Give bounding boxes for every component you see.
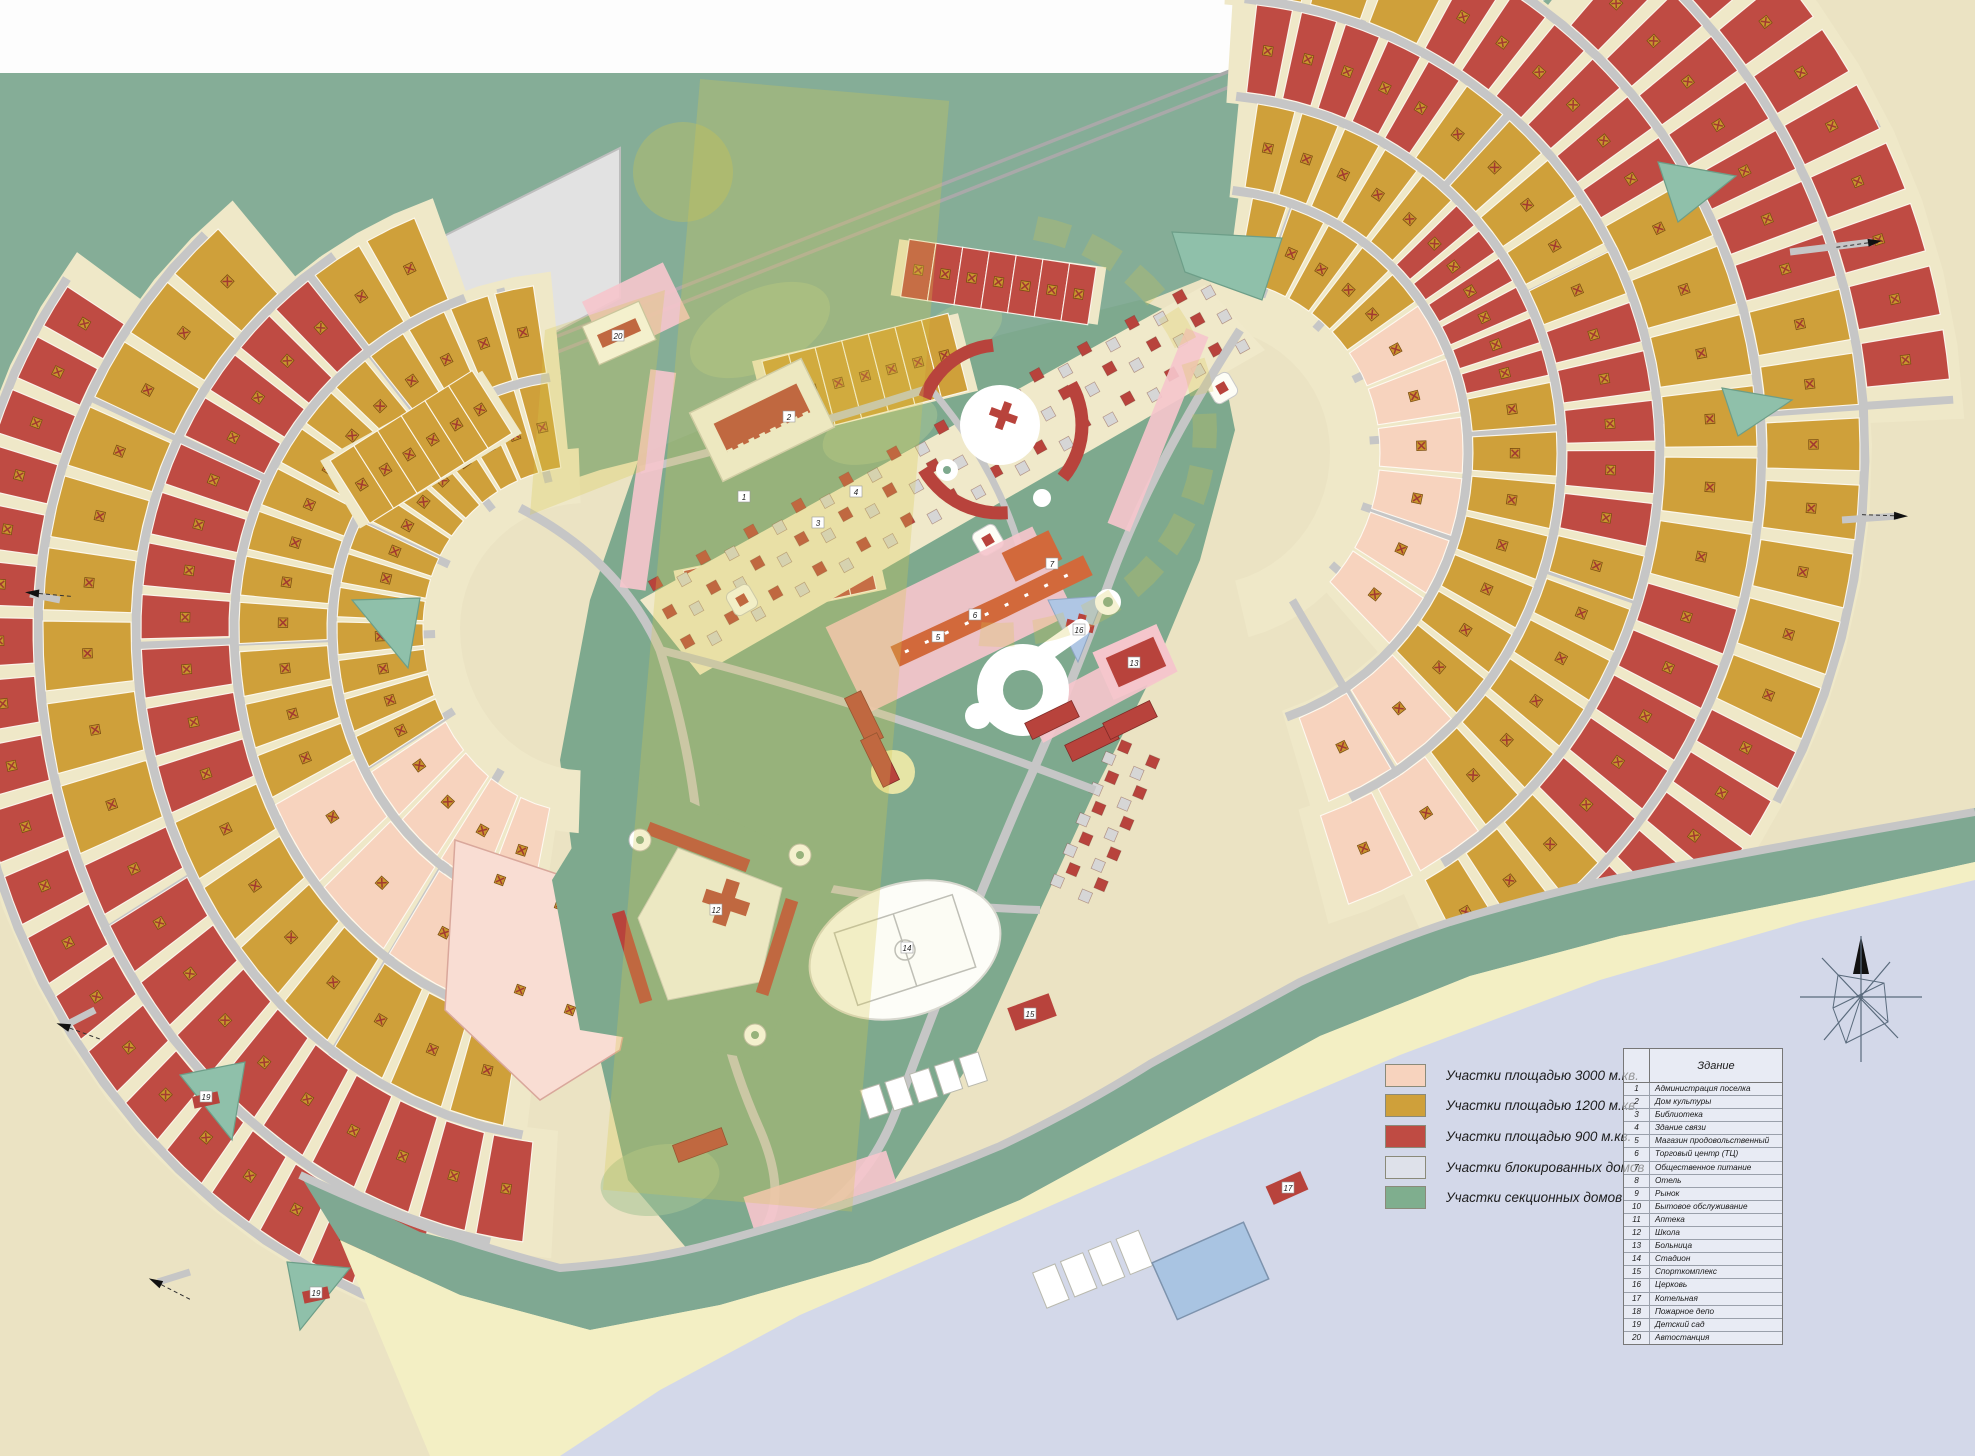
house-icon xyxy=(0,579,6,589)
legend-label: Участки площадью 3000 м.кв. xyxy=(1446,1068,1639,1083)
house-icon xyxy=(180,612,190,622)
house-icon xyxy=(1047,285,1058,296)
building-name: Дом культуры xyxy=(1650,1096,1782,1108)
legend-swatch xyxy=(1385,1064,1426,1087)
building-table-header: Здание xyxy=(1624,1049,1782,1083)
building-label: 17 xyxy=(1284,1184,1293,1193)
building-number: 16 xyxy=(1624,1279,1650,1291)
building-table-row: 6Торговый центр (ТЦ) xyxy=(1624,1148,1782,1161)
building-table-rows: 1Администрация поселка2Дом культуры3Библ… xyxy=(1624,1083,1782,1344)
building-label: 1 xyxy=(742,493,746,502)
building-table-row: 18Пожарное депо xyxy=(1624,1306,1782,1319)
road xyxy=(1842,516,1898,520)
building-table-row: 17Котельная xyxy=(1624,1293,1782,1306)
house-icon xyxy=(1073,289,1084,300)
building-table-row: 5Магазин продовольственный xyxy=(1624,1135,1782,1148)
house-icon xyxy=(84,578,94,588)
legend-swatch xyxy=(1385,1186,1426,1209)
house-icon xyxy=(1606,465,1616,475)
house-icon xyxy=(94,510,105,521)
house-icon xyxy=(1601,512,1612,523)
legend-swatch xyxy=(1385,1156,1426,1179)
building-number: 8 xyxy=(1624,1175,1650,1187)
legend-label: Участки блокированных домов xyxy=(1446,1160,1644,1175)
building-table-row: 8Отель xyxy=(1624,1175,1782,1188)
house-icon xyxy=(1783,629,1795,641)
building-name: Детский сад xyxy=(1650,1319,1782,1331)
building-table-row: 16Церковь xyxy=(1624,1279,1782,1292)
house-icon xyxy=(280,663,291,674)
building-name: Общественное питание xyxy=(1650,1162,1782,1174)
house-icon xyxy=(1506,494,1517,505)
building-name: Аптека xyxy=(1650,1214,1782,1226)
house-icon xyxy=(1411,493,1422,504)
house-icon xyxy=(188,716,199,727)
house-icon xyxy=(0,636,4,646)
building-table: Здание 1Администрация поселка2Дом культу… xyxy=(1623,1048,1783,1345)
building-name: Отель xyxy=(1650,1175,1782,1187)
building-number: 10 xyxy=(1624,1201,1650,1213)
house-icon xyxy=(482,1064,494,1076)
building-label: 4 xyxy=(854,488,859,497)
building-table-row: 15Спорткомплекс xyxy=(1624,1266,1782,1279)
building-label: 5 xyxy=(936,633,941,642)
house-icon xyxy=(1408,390,1420,402)
building-label: 20 xyxy=(613,332,623,341)
house-icon xyxy=(380,573,392,585)
house-icon xyxy=(1696,348,1707,359)
house-icon xyxy=(1705,414,1715,424)
building-label: 13 xyxy=(1130,659,1139,668)
building-table-row: 11Аптека xyxy=(1624,1214,1782,1227)
house-icon xyxy=(378,663,389,674)
legend-swatch xyxy=(1385,1094,1426,1117)
building-table-row: 19Детский сад xyxy=(1624,1319,1782,1332)
house-icon xyxy=(278,618,288,628)
building-table-row: 14Стадион xyxy=(1624,1253,1782,1266)
building-table-row: 3Библиотека xyxy=(1624,1109,1782,1122)
building-name: Стадион xyxy=(1650,1253,1782,1265)
building-number: 3 xyxy=(1624,1109,1650,1121)
house-icon xyxy=(184,565,195,576)
house-icon xyxy=(517,327,528,338)
building-label: 19 xyxy=(312,1289,321,1298)
building-number: 19 xyxy=(1624,1319,1650,1331)
house-icon xyxy=(1591,560,1603,572)
house-icon xyxy=(448,1170,460,1182)
house-icon xyxy=(281,577,292,588)
legend-label: Участки секционных домов xyxy=(1446,1190,1622,1205)
building-table-row: 4Здание связи xyxy=(1624,1122,1782,1135)
building-table-row: 9Рынок xyxy=(1624,1188,1782,1201)
house-icon xyxy=(501,1183,512,1194)
building-name: Администрация поселка xyxy=(1650,1083,1782,1095)
building-table-title: Здание xyxy=(1650,1060,1782,1072)
building-name: Рынок xyxy=(1650,1188,1782,1200)
house-icon xyxy=(289,537,301,549)
legend-label: Участки площадью 900 м.кв. xyxy=(1446,1129,1631,1144)
building-number: 11 xyxy=(1624,1214,1650,1226)
house-icon xyxy=(1599,373,1610,384)
building-label: 16 xyxy=(1075,626,1084,635)
building-number: 4 xyxy=(1624,1122,1650,1134)
house-icon xyxy=(181,664,191,674)
legend-item: Участки секционных домов xyxy=(1385,1187,1622,1209)
house-icon xyxy=(1794,318,1805,329)
building-label: 15 xyxy=(1026,1010,1035,1019)
house-icon xyxy=(1705,482,1715,492)
building-name: Бытовое обслуживание xyxy=(1650,1201,1782,1213)
legend-item: Участки блокированных домов xyxy=(1385,1156,1644,1178)
house-icon xyxy=(1804,379,1814,389)
building-table-row: 2Дом культуры xyxy=(1624,1096,1782,1109)
building-name: Школа xyxy=(1650,1227,1782,1239)
house-icon xyxy=(2,524,13,535)
building-name: Библиотека xyxy=(1650,1109,1782,1121)
building-label: 12 xyxy=(712,906,721,915)
building-number: 12 xyxy=(1624,1227,1650,1239)
building-label: 14 xyxy=(903,944,912,953)
building-number: 7 xyxy=(1624,1162,1650,1174)
building-number: 5 xyxy=(1624,1135,1650,1147)
house-icon xyxy=(1510,448,1520,458)
building-table-row: 12Школа xyxy=(1624,1227,1782,1240)
building-number: 1 xyxy=(1624,1083,1650,1095)
house-icon xyxy=(0,698,8,709)
building-number: 15 xyxy=(1624,1266,1650,1278)
building-table-row: 1Администрация поселка xyxy=(1624,1083,1782,1096)
house-icon xyxy=(6,760,17,771)
building-table-row: 7Общественное питание xyxy=(1624,1162,1782,1175)
house-icon xyxy=(1499,367,1511,379)
house-icon xyxy=(13,469,25,481)
house-icon xyxy=(1262,143,1273,154)
building-label: 19 xyxy=(202,1093,211,1102)
legend-item: Участки площадью 1200 м.кв. xyxy=(1385,1095,1639,1117)
house-icon xyxy=(1302,54,1314,66)
house-icon xyxy=(1417,441,1427,451)
house-icon xyxy=(1889,293,1900,304)
house-icon xyxy=(83,648,93,658)
building-name: Автостанция xyxy=(1650,1332,1782,1344)
house-icon xyxy=(940,269,951,280)
house-icon xyxy=(1020,281,1031,292)
building-number: 20 xyxy=(1624,1332,1650,1344)
house-icon xyxy=(1797,566,1808,577)
building-name: Здание связи xyxy=(1650,1122,1782,1134)
building-name: Котельная xyxy=(1650,1293,1782,1305)
legend-item: Участки площадью 900 м.кв. xyxy=(1385,1125,1631,1147)
building-number: 9 xyxy=(1624,1188,1650,1200)
house-icon xyxy=(966,273,977,284)
building-table-row: 13Больница xyxy=(1624,1240,1782,1253)
legend-swatch xyxy=(1385,1125,1426,1148)
building-number: 13 xyxy=(1624,1240,1650,1252)
house-icon xyxy=(1696,551,1707,562)
house-icon xyxy=(1806,503,1816,513)
building-number: 18 xyxy=(1624,1306,1650,1318)
house-icon xyxy=(90,724,101,735)
building-label: 3 xyxy=(816,519,821,528)
house-icon xyxy=(1809,440,1819,450)
building-name: Пожарное депо xyxy=(1650,1306,1782,1318)
building-number: 6 xyxy=(1624,1148,1650,1160)
building-number: 17 xyxy=(1624,1293,1650,1305)
building-number: 14 xyxy=(1624,1253,1650,1265)
house-icon xyxy=(287,708,299,720)
building-label: 7 xyxy=(1050,560,1055,569)
masterplan-page: 2021435671613121415171919 Участки площад… xyxy=(0,0,1975,1456)
building-label: 2 xyxy=(786,413,792,422)
house-icon xyxy=(1507,404,1518,415)
building-table-row: 10Бытовое обслуживание xyxy=(1624,1201,1782,1214)
house-icon xyxy=(993,277,1004,288)
building-name: Больница xyxy=(1650,1240,1782,1252)
plot-cell xyxy=(0,617,34,667)
building-name: Спорткомплекс xyxy=(1650,1266,1782,1278)
building-table-row: 20Автостанция xyxy=(1624,1332,1782,1344)
building-table-num-col xyxy=(1624,1049,1650,1082)
building-name: Церковь xyxy=(1650,1279,1782,1291)
house-icon xyxy=(1900,354,1911,365)
legend-item: Участки площадью 3000 м.кв. xyxy=(1385,1064,1639,1086)
building-name: Магазин продовольственный xyxy=(1650,1135,1782,1147)
house-icon xyxy=(1605,419,1615,429)
legend-label: Участки площадью 1200 м.кв. xyxy=(1446,1098,1639,1113)
building-name: Торговый центр (ТЦ) xyxy=(1650,1148,1782,1160)
building-label: 6 xyxy=(973,611,978,620)
house-icon xyxy=(1262,45,1273,56)
building-number: 2 xyxy=(1624,1096,1650,1108)
house-icon xyxy=(193,519,205,531)
